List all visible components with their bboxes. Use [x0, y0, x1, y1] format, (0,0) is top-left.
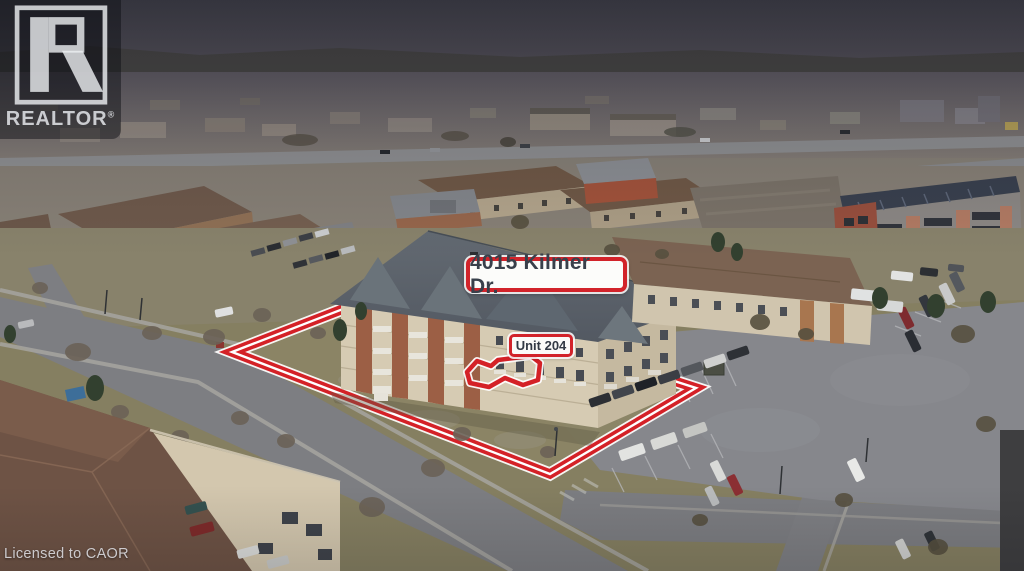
realtor-logo-icon: [13, 5, 109, 105]
unit-label: Unit 204: [509, 334, 573, 357]
address-label: 4015 Kilmer Dr.: [466, 257, 627, 292]
registered-mark: ®: [108, 109, 116, 119]
watermark-brand-text: REALTOR®: [6, 106, 115, 132]
realtor-watermark: REALTOR®: [0, 0, 121, 139]
license-text: Licensed to CAOR: [4, 546, 129, 562]
aerial-photo: REALTOR® 4015 Kilmer Dr. Unit 204 Licens…: [0, 0, 1024, 571]
